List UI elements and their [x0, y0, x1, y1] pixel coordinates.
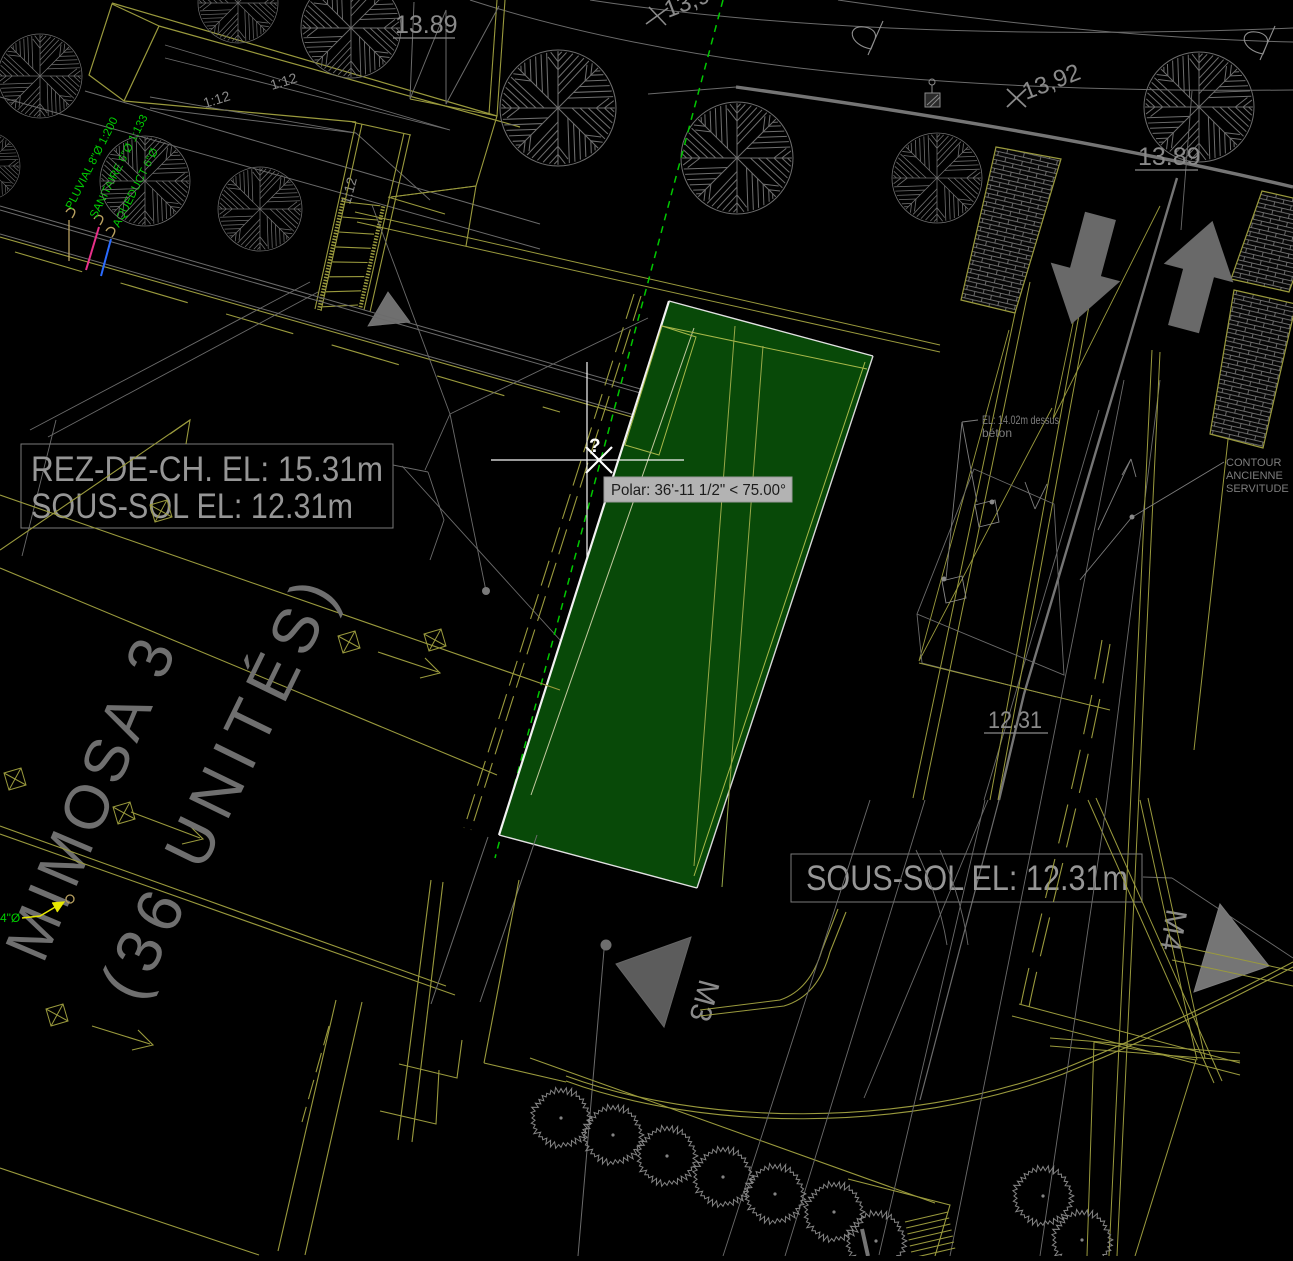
- svg-text:4"Ø: 4"Ø: [0, 911, 20, 925]
- svg-text:SERVITUDE: SERVITUDE: [1226, 483, 1289, 495]
- svg-text:13.89: 13.89: [1138, 143, 1201, 171]
- svg-text:?: ?: [589, 436, 601, 457]
- svg-text:Polar: 36'-11 1/2" < 75.00°: Polar: 36'-11 1/2" < 75.00°: [611, 482, 786, 499]
- svg-text:13.89: 13.89: [395, 11, 458, 39]
- svg-text:ANCIENNE: ANCIENNE: [1226, 470, 1283, 482]
- svg-text:SOUS-SOL EL: 12.31m: SOUS-SOL EL: 12.31m: [31, 487, 353, 526]
- svg-text:EL: 14.02m dessus: EL: 14.02m dessus: [982, 413, 1059, 427]
- svg-text:REZ-DE-CH. EL: 15.31m: REZ-DE-CH. EL: 15.31m: [31, 450, 383, 489]
- svg-text:12.31: 12.31: [988, 707, 1042, 734]
- svg-text:CONTOUR: CONTOUR: [1226, 457, 1281, 469]
- svg-text:béton: béton: [982, 426, 1012, 440]
